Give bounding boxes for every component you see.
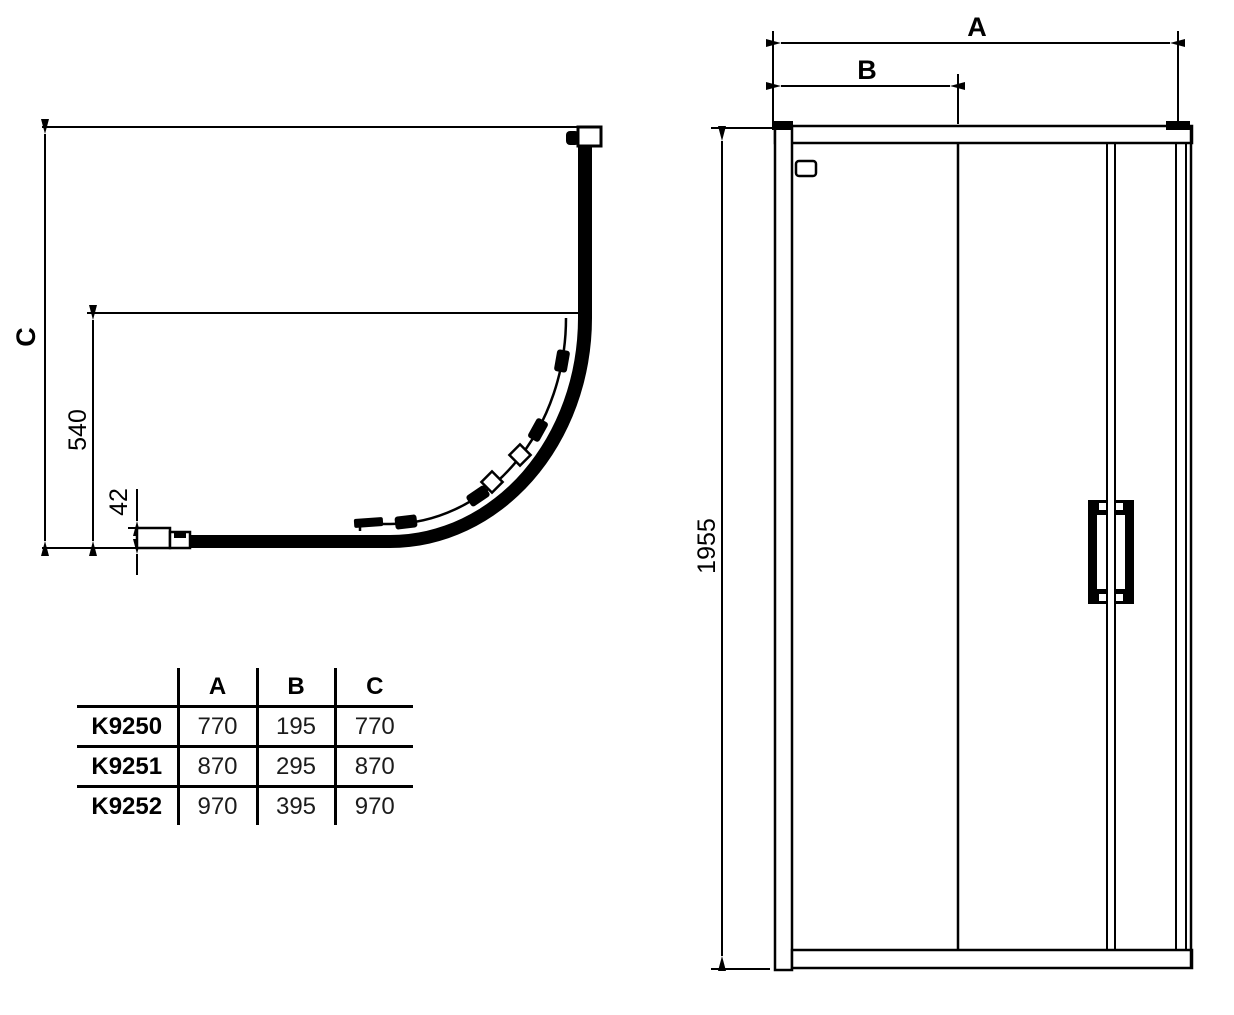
wall-bracket-elevation	[796, 161, 816, 176]
dim-label-42: 42	[105, 488, 133, 516]
door-handle-right	[1115, 500, 1134, 604]
curved-glass-panel	[190, 128, 592, 548]
dim-label-540: 540	[64, 409, 92, 451]
dim-label-b: B	[857, 55, 877, 85]
model-name: K9251	[77, 747, 178, 787]
model-name: K9250	[77, 707, 178, 747]
value-c: 970	[335, 787, 413, 826]
dimension-b: B	[781, 55, 958, 124]
dimension-1955: 1955	[693, 128, 772, 969]
frame-cap-right	[1166, 121, 1190, 130]
roller	[394, 514, 417, 530]
frame-top-bar	[775, 126, 1192, 143]
value-b: 395	[257, 787, 335, 826]
value-c: 770	[335, 707, 413, 747]
dim-label-c: C	[11, 327, 41, 347]
dimension-a: A	[773, 12, 1178, 124]
value-b: 195	[257, 707, 335, 747]
drawing-canvas: C 540 42	[0, 0, 1234, 1015]
dim-label-a: A	[967, 12, 987, 42]
value-c: 870	[335, 747, 413, 787]
roller	[554, 349, 571, 373]
profile-step-latch	[174, 532, 186, 538]
plan-view: C 540 42	[11, 127, 601, 575]
value-b: 295	[257, 747, 335, 787]
elevation-view: A B 1955	[693, 12, 1192, 970]
technical-drawing-page: C 540 42	[0, 0, 1234, 1015]
frame-cap-left	[772, 121, 793, 130]
table-header-row: A B C	[77, 668, 413, 707]
wall-profile-plan	[137, 528, 170, 548]
roller	[527, 417, 549, 443]
size-spec-table: A B C K9250 770 195 770 K9251 870 295 87…	[77, 668, 413, 825]
door-end-cap	[354, 517, 384, 528]
table-row: K9250 770 195 770	[77, 707, 413, 747]
wall-bracket-knob	[566, 131, 579, 145]
table-row: K9251 870 295 870	[77, 747, 413, 787]
frame-left-wall-profile	[775, 126, 792, 970]
wall-bracket-top	[578, 127, 601, 146]
column-header-c: C	[335, 668, 413, 707]
value-a: 870	[178, 747, 257, 787]
corner-cell	[77, 668, 178, 707]
column-header-a: A	[178, 668, 257, 707]
value-a: 770	[178, 707, 257, 747]
table-row: K9252 970 395 970	[77, 787, 413, 826]
value-a: 970	[178, 787, 257, 826]
column-header-b: B	[257, 668, 335, 707]
frame-bottom-bar	[792, 950, 1192, 968]
model-name: K9252	[77, 787, 178, 826]
dim-label-1955: 1955	[693, 518, 721, 574]
dimension-c: C	[11, 134, 45, 541]
door-handle-left	[1088, 500, 1107, 604]
dimension-540: 540	[64, 320, 93, 541]
